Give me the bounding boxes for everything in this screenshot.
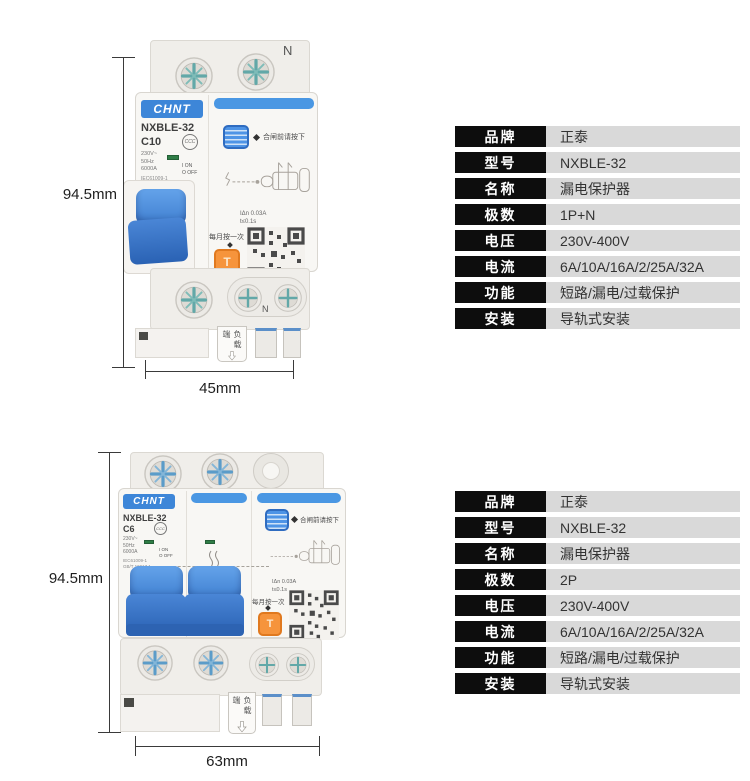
terminal-screw-icon: [237, 53, 275, 91]
down-arrow-icon: [235, 721, 249, 733]
ratings-marking: 230V~ 50Hz 6000A: [123, 536, 138, 556]
terminal-prong: [262, 694, 282, 726]
blue-accent-bar: [257, 493, 341, 503]
dimension-tick: [112, 57, 135, 58]
trip-time-marking: t≤0.1s: [272, 587, 287, 593]
spec-row: 安装导轨式安装: [455, 673, 740, 694]
spec-row-label: 电流: [455, 621, 546, 642]
neutral-terminal-pair: N: [227, 277, 307, 317]
curve-rating-marking: C10: [141, 136, 161, 148]
din-clip: [124, 698, 134, 707]
spec-row-value: 短路/漏电/过载保护: [546, 647, 740, 668]
ccc-mark-icon: CCC: [182, 134, 198, 150]
terminal-screw-icon: [175, 281, 213, 319]
pointer-icon: [265, 605, 271, 611]
terminal-pair: [249, 647, 315, 681]
bottom-terminal-block: N: [150, 268, 310, 330]
status-indicator: [167, 155, 179, 160]
spec-row: 名称漏电保护器: [455, 543, 740, 564]
wiring-diagram-icon: [269, 533, 341, 575]
trip-time-marking: t≤0.1s: [240, 219, 256, 225]
load-side-label: 负载端: [221, 330, 243, 350]
toggle-lever-handle: [128, 217, 189, 265]
residual-current-marking: IΔn 0.03A: [272, 579, 296, 585]
din-clip: [139, 332, 148, 340]
terminal-screw-icon: [137, 645, 173, 681]
spec-table-2p: 品牌正泰型号NXBLE-32名称漏电保护器极数2P电压230V-400V电流6A…: [455, 491, 740, 694]
dimension-tick: [135, 736, 136, 756]
spec-row-value: 230V-400V: [546, 230, 740, 251]
terminal-screw-icon: [234, 284, 262, 312]
spec-row-label: 品牌: [455, 491, 546, 512]
dimension-tick: [98, 452, 121, 453]
spec-row: 功能短路/漏电/过载保护: [455, 282, 740, 303]
height-dimension-label: 94.5mm: [42, 186, 117, 203]
neutral-marking: N: [283, 43, 292, 58]
spec-row: 极数1P+N: [455, 204, 740, 225]
on-off-marking: I ON O OFF: [182, 163, 197, 176]
spec-row: 型号NXBLE-32: [455, 152, 740, 173]
on-off-marking: I ON O OFF: [159, 547, 173, 559]
toggle-housing: [123, 180, 195, 274]
spec-row-value: NXBLE-32: [546, 517, 740, 538]
press-before-closing-note: 合闸前请按下: [263, 132, 305, 142]
terminal-prong: [292, 694, 312, 726]
height-dimension-line: [109, 452, 110, 732]
breaking-capacity-marking: 6000A: [123, 549, 138, 556]
terminal-prong: [255, 328, 277, 358]
blue-accent-bar: [214, 98, 314, 109]
voltage-marking: 230V~: [123, 536, 138, 543]
height-dimension-line: [123, 57, 124, 367]
spec-row: 品牌正泰: [455, 126, 740, 147]
spec-row: 功能短路/漏电/过载保护: [455, 647, 740, 668]
terminal-hole-inner: [262, 462, 281, 481]
terminal-hole: [253, 453, 289, 489]
neutral-marking: N: [262, 304, 269, 314]
spec-row: 品牌正泰: [455, 491, 740, 512]
product-spec-page: N CHNT NXBLE-32 C10 CCC 230V~ 50Hz 6000A…: [0, 0, 750, 781]
spec-row-label: 品牌: [455, 126, 546, 147]
curve-rating-marking: C6: [123, 524, 135, 534]
spec-row-value: NXBLE-32: [546, 152, 740, 173]
spec-row-label: 型号: [455, 517, 546, 538]
dimension-tick: [319, 736, 320, 756]
breaking-capacity-marking: 6000A: [141, 166, 157, 174]
spec-row-value: 漏电保护器: [546, 178, 740, 199]
spec-row-label: 型号: [455, 152, 546, 173]
terminal-screw-icon: [274, 284, 302, 312]
width-dimension-line: [145, 371, 294, 372]
spec-row-label: 名称: [455, 543, 546, 564]
chint-logo: CHNT: [141, 100, 203, 118]
load-side-tab: 负载端: [217, 326, 247, 362]
spec-row-value: 正泰: [546, 126, 740, 147]
breaker-photo-1p-n: N CHNT NXBLE-32 C10 CCC 230V~ 50Hz 6000A…: [135, 40, 320, 362]
spec-row: 名称漏电保护器: [455, 178, 740, 199]
pointer-icon: [253, 134, 260, 141]
spec-row: 电压230V-400V: [455, 595, 740, 616]
monthly-test-note: 每月按一次: [209, 232, 244, 242]
spec-row-label: 安装: [455, 308, 546, 329]
pointer-icon: [291, 516, 298, 523]
off-marking: O OFF: [159, 553, 173, 559]
ratings-marking: 230V~ 50Hz 6000A: [141, 151, 157, 174]
spec-row-label: 极数: [455, 569, 546, 590]
reset-button: [265, 509, 289, 531]
top-terminal-block: N: [150, 40, 310, 98]
load-side-label: 负载端: [231, 696, 253, 720]
din-rail-foot: [120, 694, 220, 732]
test-button: T: [258, 612, 282, 636]
spec-table-1p-n: 品牌正泰型号NXBLE-32名称漏电保护器极数1P+N电压230V-400V电流…: [455, 126, 740, 329]
spec-row-value: 正泰: [546, 491, 740, 512]
terminal-screw-icon: [255, 653, 279, 677]
spec-row-value: 230V-400V: [546, 595, 740, 616]
spec-row-value: 导轨式安装: [546, 308, 740, 329]
spec-row-value: 1P+N: [546, 204, 740, 225]
spec-row: 安装导轨式安装: [455, 308, 740, 329]
down-arrow-icon: [225, 351, 239, 361]
spec-row-label: 名称: [455, 178, 546, 199]
bottom-terminal-block: [120, 638, 322, 696]
module-divider: [208, 95, 209, 271]
spec-row: 电压230V-400V: [455, 230, 740, 251]
spec-row: 极数2P: [455, 569, 740, 590]
width-dimension-label: 63mm: [172, 753, 282, 770]
spec-row-value: 6A/10A/16A/2/25A/32A: [546, 256, 740, 277]
status-indicator: [144, 540, 154, 544]
terminal-screw-icon: [286, 653, 310, 677]
spec-row-label: 电流: [455, 256, 546, 277]
spec-row-value: 导轨式安装: [546, 673, 740, 694]
terminal-screw-icon: [193, 645, 229, 681]
width-dimension-label: 45mm: [170, 380, 270, 397]
blue-accent-bar: [191, 493, 247, 503]
spec-row-label: 电压: [455, 230, 546, 251]
dimension-tick: [293, 360, 294, 379]
spec-row: 电流6A/10A/16A/2/25A/32A: [455, 621, 740, 642]
qr-code: [287, 590, 341, 640]
model-marking: NXBLE-32: [141, 122, 194, 134]
spec-row: 型号NXBLE-32: [455, 517, 740, 538]
width-dimension-line: [135, 746, 320, 747]
ccc-mark-icon: CCC: [154, 522, 167, 535]
module-divider: [251, 491, 252, 637]
frequency-marking: 50Hz: [141, 159, 157, 167]
off-marking: O OFF: [182, 170, 197, 177]
spec-row-label: 功能: [455, 282, 546, 303]
terminal-screw-icon: [201, 453, 239, 491]
spec-row: 电流6A/10A/16A/2/25A/32A: [455, 256, 740, 277]
spec-row-value: 6A/10A/16A/2/25A/32A: [546, 621, 740, 642]
spec-row-label: 电压: [455, 595, 546, 616]
spec-row-label: 功能: [455, 647, 546, 668]
spec-row-value: 短路/漏电/过载保护: [546, 282, 740, 303]
spec-row-value: 漏电保护器: [546, 543, 740, 564]
spec-row-value: 2P: [546, 569, 740, 590]
status-indicator: [205, 540, 215, 544]
press-before-closing-note: 合闸前请按下: [300, 514, 339, 524]
pointer-icon: [227, 242, 233, 248]
chint-logo: CHNT: [123, 494, 175, 509]
spec-row-label: 安装: [455, 673, 546, 694]
breaker-photo-2p: CHNT NXBLE-32 C6 CCC 230V~ 50Hz 6000A I …: [118, 452, 348, 742]
dimension-tick: [98, 732, 121, 733]
residual-current-marking: IΔn 0.03A: [240, 211, 266, 217]
wiring-diagram-icon: [224, 155, 312, 203]
spec-row-label: 极数: [455, 204, 546, 225]
voltage-marking: 230V~: [141, 151, 157, 159]
terminal-prong: [283, 328, 301, 358]
height-dimension-label: 94.5mm: [30, 570, 103, 587]
terminal-screw-icon: [175, 57, 213, 95]
dimension-tick: [112, 367, 135, 368]
reset-button: [223, 125, 249, 149]
toggle-link-bar: [126, 624, 244, 636]
load-side-tab: 负载端: [228, 692, 256, 734]
dimension-tick: [145, 360, 146, 379]
